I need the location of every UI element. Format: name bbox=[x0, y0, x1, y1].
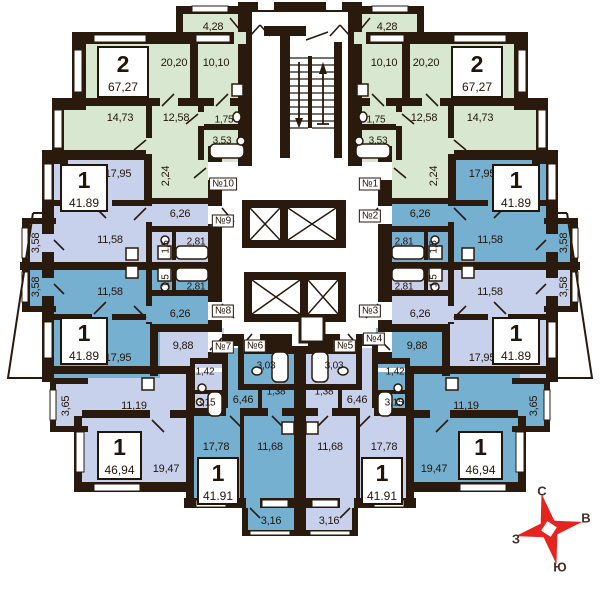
room-area-label: 3,65 bbox=[528, 396, 540, 417]
rooms-count: 1 bbox=[212, 460, 225, 487]
apartment-number-badge: №10 bbox=[209, 178, 237, 191]
stove-icon bbox=[462, 248, 474, 260]
room-area-label: 11,68 bbox=[257, 441, 283, 453]
stove-icon bbox=[282, 422, 294, 434]
room-area-label: 4,28 bbox=[377, 21, 398, 33]
room-area-label: 17,78 bbox=[203, 441, 230, 453]
room-area-label: 3,16 bbox=[319, 515, 340, 527]
apartment-badge: 1 41.89 bbox=[60, 317, 108, 365]
room-area-label: 17,78 bbox=[371, 441, 398, 453]
rooms-count: 2 bbox=[471, 51, 484, 78]
stove-icon bbox=[462, 266, 474, 278]
apartment-badge: 2 67,27 bbox=[451, 46, 503, 98]
stair-arrow-up bbox=[319, 62, 327, 74]
apartment-number-badge: №7 bbox=[212, 341, 234, 354]
room-area-label: 10,10 bbox=[371, 57, 398, 69]
room-area-label: 12,58 bbox=[163, 112, 190, 124]
room-area-label: 11,19 bbox=[121, 400, 147, 412]
room-area-label: 10,10 bbox=[203, 57, 230, 69]
room-area-label: 2,24 bbox=[160, 166, 172, 187]
stove-icon bbox=[126, 266, 138, 278]
room-area-label: 11,19 bbox=[453, 400, 479, 412]
room-area-label: 3,15 bbox=[385, 398, 404, 409]
room-area-label: 17,95 bbox=[105, 352, 132, 364]
total-area: 46,94 bbox=[104, 463, 134, 477]
room-area-label: 14,73 bbox=[467, 112, 494, 124]
total-area: 67,27 bbox=[462, 80, 492, 94]
room-area-label: 3,53 bbox=[213, 136, 232, 147]
room-area-label: 6,26 bbox=[410, 308, 431, 320]
room-area-label: 3,65 bbox=[60, 396, 72, 417]
apartment-number-badge: №8 bbox=[212, 305, 234, 318]
total-area: 41.89 bbox=[69, 196, 99, 210]
room-area-label: 3,16 bbox=[261, 515, 282, 527]
rooms-count: 1 bbox=[78, 320, 91, 347]
room-area-label: 19,47 bbox=[421, 463, 448, 475]
apartment-badge: 1 41.89 bbox=[492, 164, 540, 212]
floor-plan: 4,28 20,20 10,10 14,73 12,58 1,75 3,53 2… bbox=[0, 0, 600, 600]
room-area-label: 4,28 bbox=[203, 21, 224, 33]
stove-icon bbox=[306, 422, 318, 434]
total-area: 41.89 bbox=[501, 196, 531, 210]
stove-icon bbox=[126, 248, 138, 260]
room-area-label: 3,58 bbox=[30, 277, 42, 298]
room-area-label: 3,58 bbox=[558, 233, 570, 254]
room-area-label: 11,68 bbox=[317, 441, 343, 453]
rooms-count: 1 bbox=[376, 460, 389, 487]
apartment-number-badge: №2 bbox=[359, 210, 381, 223]
room-area-label: 9,88 bbox=[407, 340, 428, 352]
apartment-number-badge: №6 bbox=[244, 340, 266, 353]
compass-west-label: З bbox=[512, 532, 520, 547]
floor-plan-drawing bbox=[0, 0, 600, 600]
apartment-badge: 1 41.89 bbox=[492, 317, 540, 365]
room-area-label: 2,24 bbox=[428, 166, 440, 187]
room-area-label: 1,75 bbox=[215, 115, 234, 126]
apartment-number-badge: №3 bbox=[359, 305, 381, 318]
room-area-label: 2,81 bbox=[187, 282, 206, 293]
room-area-label: 19,47 bbox=[153, 463, 180, 475]
total-area: 41.91 bbox=[367, 489, 397, 503]
room-area-label: 11,58 bbox=[97, 234, 123, 246]
sink-icon bbox=[237, 137, 245, 145]
room-area-label: 9,88 bbox=[173, 340, 194, 352]
room-area-label: 3,58 bbox=[30, 233, 42, 254]
stove-icon bbox=[357, 84, 368, 96]
room-area-label: 1,75 bbox=[367, 115, 386, 126]
rooms-count: 1 bbox=[113, 434, 126, 461]
room-area-label: 11,58 bbox=[477, 286, 503, 298]
rooms-count: 1 bbox=[510, 167, 523, 194]
apartment-badge: 2 67,27 bbox=[97, 46, 149, 98]
room-area-label: 20,20 bbox=[413, 57, 440, 69]
compass-star bbox=[508, 487, 589, 572]
room-area-label: 6,26 bbox=[410, 208, 431, 220]
apartment-badge: 1 41.89 bbox=[60, 164, 108, 212]
rooms-count: 1 bbox=[510, 320, 523, 347]
total-area: 67,27 bbox=[108, 80, 138, 94]
toilet-icon bbox=[198, 384, 206, 392]
room-area-label: 3,03 bbox=[325, 361, 344, 372]
compass-south-label: Ю bbox=[553, 560, 566, 575]
bathtub-icon bbox=[176, 246, 208, 259]
vent-shaft bbox=[300, 316, 324, 342]
bathtub-icon bbox=[176, 268, 208, 281]
bathtub-icon bbox=[392, 246, 424, 259]
room-area-label: 6,26 bbox=[170, 208, 191, 220]
compass-north-label: С bbox=[537, 484, 546, 499]
room-area-label: 1,42 bbox=[386, 367, 405, 378]
total-area: 41.91 bbox=[203, 489, 233, 503]
stove-icon bbox=[142, 378, 154, 390]
bathtub-icon bbox=[392, 268, 424, 281]
rooms-count: 2 bbox=[117, 51, 130, 78]
stove-icon bbox=[232, 84, 243, 96]
apartment-badge: 1 41.91 bbox=[197, 457, 239, 505]
compass-east-label: В bbox=[581, 511, 590, 526]
total-area: 46,94 bbox=[465, 463, 495, 477]
room-area-label: 2,81 bbox=[395, 237, 414, 248]
room-area-label: 3,53 bbox=[369, 136, 388, 147]
room-area-label: 1,5 bbox=[429, 240, 440, 253]
apartment-number-badge: №1 bbox=[359, 178, 381, 191]
room-area-label: 1,5 bbox=[161, 274, 172, 287]
room-area-label: 3,15 bbox=[197, 398, 216, 409]
room-area-label: 12,58 bbox=[411, 112, 438, 124]
room-area-label: 6,46 bbox=[347, 394, 368, 406]
room-area-label: 1,42 bbox=[196, 367, 215, 378]
sink-icon bbox=[355, 137, 363, 145]
stove-icon bbox=[446, 378, 458, 390]
apartment-badge: 1 41.91 bbox=[361, 457, 403, 505]
room-area-label: 2,81 bbox=[395, 282, 414, 293]
apartment-badge: 1 46,94 bbox=[458, 431, 503, 480]
room-area-label: 11,58 bbox=[477, 234, 503, 246]
room-area-label: 20,20 bbox=[161, 57, 188, 69]
rooms-count: 1 bbox=[474, 434, 487, 461]
room-area-label: 1,5 bbox=[429, 274, 440, 287]
toilet-icon bbox=[394, 384, 402, 392]
total-area: 41.89 bbox=[69, 349, 99, 363]
apartment-badge: 1 46,94 bbox=[97, 431, 142, 480]
apartment-number-badge: №9 bbox=[212, 215, 234, 228]
room-area-label: 1,5 bbox=[161, 240, 172, 253]
rooms-count: 1 bbox=[78, 167, 91, 194]
stair-arrow-down bbox=[295, 118, 303, 128]
room-area-label: 1,38 bbox=[315, 387, 334, 398]
room-area-label: 17,95 bbox=[105, 168, 132, 180]
room-area-label: 2,81 bbox=[187, 237, 206, 248]
apartment-number-badge: №4 bbox=[363, 333, 385, 346]
toilet-icon bbox=[233, 112, 241, 122]
room-area-label: 1,38 bbox=[267, 387, 286, 398]
total-area: 41.89 bbox=[501, 349, 531, 363]
room-area-label: 11,58 bbox=[97, 286, 123, 298]
room-area-label: 14,73 bbox=[107, 112, 134, 124]
room-area-label: 6,26 bbox=[170, 308, 191, 320]
room-area-label: 3,03 bbox=[257, 361, 276, 372]
room-area-label: 6,46 bbox=[233, 394, 254, 406]
apartment-number-badge: №5 bbox=[334, 340, 356, 353]
room-area-label: 3,58 bbox=[558, 277, 570, 298]
